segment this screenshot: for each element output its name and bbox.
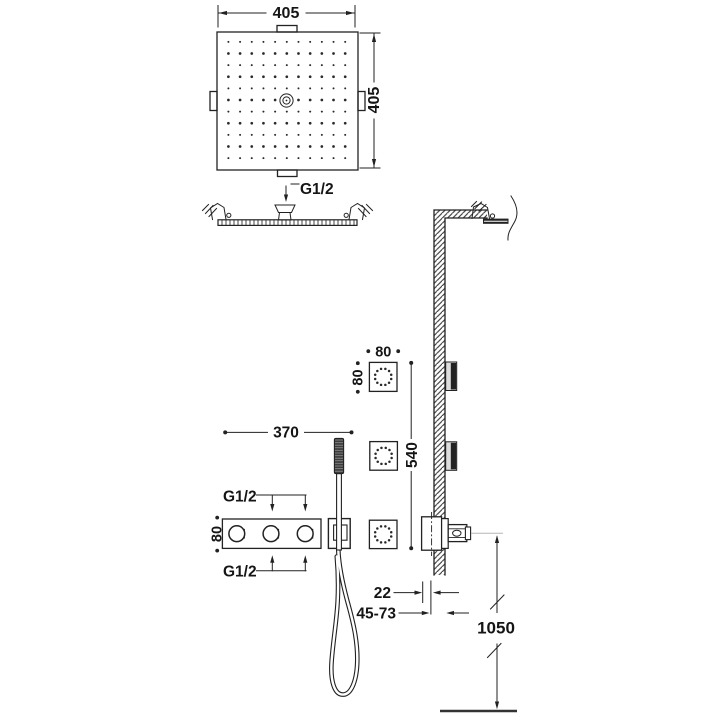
nozzle-dot	[388, 382, 391, 385]
section-break-curve	[508, 196, 517, 240]
nozzle-dot	[286, 157, 288, 159]
nozzle-dot	[309, 122, 312, 125]
nozzle-dot	[297, 134, 299, 136]
floor-height-label: 1050	[477, 619, 515, 638]
nozzle-dot	[285, 52, 288, 55]
nozzle-dot	[320, 52, 323, 55]
nozzle-dot	[374, 378, 377, 381]
nozzle-dot	[376, 382, 379, 385]
nozzle-dot	[344, 87, 346, 89]
nozzle-dot	[344, 41, 346, 43]
nozzle-dot	[321, 41, 323, 43]
nozzle-dot	[384, 384, 387, 387]
nozzle-dot	[274, 99, 277, 102]
jet-nozzle-dots	[374, 368, 393, 544]
nozzle-dot	[344, 99, 347, 102]
nozzle-dot	[262, 111, 264, 113]
nozzle-dot	[227, 64, 229, 66]
nozzle-dot	[320, 99, 323, 102]
nozzle-dot	[332, 99, 335, 102]
nozzle-dot	[297, 145, 300, 148]
jet-body-side-1	[446, 362, 457, 391]
nozzle-dot	[321, 111, 323, 113]
nozzle-dot	[227, 122, 230, 125]
nozzle-dot	[380, 463, 383, 466]
shower-head-tab-left	[210, 92, 217, 111]
nozzle-dot	[374, 535, 377, 538]
nozzle-dot	[239, 87, 241, 89]
mixer-knob-2	[263, 526, 279, 542]
nozzle-dot	[309, 111, 311, 113]
nozzle-dot	[227, 41, 229, 43]
nozzle-dot	[333, 87, 335, 89]
nozzle-dot	[297, 111, 299, 113]
head-width-label: 405	[273, 5, 300, 22]
nozzle-dot	[239, 99, 242, 102]
dimension-head-height: 405	[360, 33, 383, 168]
jet-body-side-2	[446, 442, 457, 471]
depth-range-label: 45-73	[356, 606, 396, 623]
nozzle-dot	[262, 41, 264, 43]
nozzle-dot	[239, 134, 241, 136]
nozzle-dot	[274, 64, 276, 66]
shower-head-tab-bottom	[278, 170, 298, 177]
jet-mechanism-side	[422, 512, 503, 556]
nozzle-dot	[274, 145, 277, 148]
nozzle-dot	[344, 75, 347, 78]
nozzle-dot	[384, 368, 387, 371]
nozzle-dot	[344, 145, 347, 148]
nozzle-dot	[285, 145, 288, 148]
nozzle-dot	[274, 52, 277, 55]
nozzle-dot	[390, 535, 393, 538]
nozzle-dot	[388, 449, 391, 452]
nozzle-dot	[376, 527, 379, 530]
shower-set-diagram: 405 405 G1/2	[0, 0, 720, 720]
nozzle-dot	[374, 374, 377, 377]
nozzle-dot	[227, 145, 230, 148]
nozzle-dot	[239, 75, 242, 78]
nozzle-dot	[250, 75, 253, 78]
nozzle-dot	[251, 111, 253, 113]
jet-width-label: 80	[375, 345, 391, 361]
nozzle-dot	[262, 145, 265, 148]
nozzle-dot	[376, 370, 379, 373]
nozzle-dot	[251, 157, 253, 159]
nozzle-dot	[262, 64, 264, 66]
body-jet-1	[369, 362, 397, 391]
dimension-jet-height: 80	[350, 361, 366, 393]
nozzle-dot	[380, 525, 383, 528]
nozzle-dot	[239, 64, 241, 66]
nozzle-dot	[274, 75, 277, 78]
nozzle-dot	[309, 157, 311, 159]
shower-head-tab-right	[358, 92, 365, 111]
nozzle-dot	[309, 75, 312, 78]
jet-span-label: 540	[404, 442, 421, 468]
nozzle-dot	[262, 134, 264, 136]
nozzle-dot	[333, 64, 335, 66]
nozzle-dot	[380, 541, 383, 544]
nozzle-dot	[333, 111, 335, 113]
nozzle-dot	[390, 378, 393, 381]
nozzle-dot	[374, 453, 377, 456]
nozzle-dot	[390, 453, 393, 456]
hand-shower-shaft	[337, 474, 342, 550]
mixer-top-connection-callout: G1/2	[223, 489, 307, 512]
hand-shower	[328, 438, 357, 694]
nozzle-dot	[239, 157, 241, 159]
nozzle-dot	[380, 368, 383, 371]
nozzle-dot	[239, 111, 241, 113]
nozzle-dot	[227, 134, 229, 136]
nozzle-dot	[320, 145, 323, 148]
central-nozzle-dot	[286, 100, 288, 102]
nozzle-dot	[250, 145, 253, 148]
nozzle-dot	[297, 99, 300, 102]
nozzle-dot	[384, 463, 387, 466]
mixer-width-label: 370	[273, 425, 299, 442]
nozzle-dot	[380, 447, 383, 450]
nozzle-dot	[297, 75, 300, 78]
nozzle-dot	[274, 111, 276, 113]
dimension-jet-width: 80	[366, 345, 400, 361]
body-jets-front	[369, 362, 397, 548]
wall-section	[422, 196, 517, 575]
nozzle-dot	[250, 99, 253, 102]
body-jet-2	[370, 442, 398, 471]
dimension-mixer-width: 370	[223, 425, 353, 442]
nozzle-dot	[376, 461, 379, 464]
ceiling-section-view	[203, 204, 373, 226]
nozzle-dot	[227, 111, 229, 113]
nozzle-dot	[332, 145, 335, 148]
nozzle-dot	[384, 525, 387, 528]
ceiling-hatch	[445, 210, 487, 218]
nozzle-dot	[332, 122, 335, 125]
nozzle-dot	[380, 384, 383, 387]
nozzle-dot	[274, 87, 276, 89]
nozzle-dot	[285, 75, 288, 78]
nozzle-dot	[390, 457, 393, 460]
nozzle-dot	[227, 157, 229, 159]
nozzle-dot	[321, 157, 323, 159]
nozzle-dot	[250, 52, 253, 55]
nozzle-dot	[344, 111, 346, 113]
nozzle-dot	[309, 99, 312, 102]
nozzle-dot	[344, 52, 347, 55]
nozzle-dot	[344, 122, 347, 125]
ceiling-anchor-right	[344, 204, 372, 220]
nozzle-dot	[374, 457, 377, 460]
nozzle-dot	[262, 87, 264, 89]
nozzle-dot	[297, 87, 299, 89]
nozzle-dot	[262, 52, 265, 55]
nozzle-dot	[376, 539, 379, 542]
shower-head-section-bar	[218, 220, 357, 226]
water-inlet-connector	[275, 205, 295, 220]
nozzle-dot	[251, 87, 253, 89]
nozzle-dot	[274, 157, 276, 159]
nozzle-dot	[274, 134, 276, 136]
nozzle-dot	[286, 87, 288, 89]
nozzle-dot	[274, 122, 277, 125]
nozzle-dot	[388, 461, 391, 464]
nozzle-dot	[344, 157, 346, 159]
dimension-depth-range: 45-73	[356, 606, 468, 623]
nozzle-dot	[333, 134, 335, 136]
head-height-label: 405	[366, 87, 383, 114]
nozzle-dot	[344, 64, 346, 66]
nozzle-dot	[384, 447, 387, 450]
nozzle-dot	[309, 52, 312, 55]
nozzle-dot	[227, 52, 230, 55]
technical-drawing-canvas: 405 405 G1/2	[0, 0, 720, 720]
nozzle-dot	[262, 75, 265, 78]
nozzle-dot	[262, 99, 265, 102]
mixer-knob-3	[297, 526, 313, 542]
mixer-bottom-connection-label: G1/2	[223, 564, 257, 581]
nozzle-dot	[262, 157, 264, 159]
nozzle-dot	[250, 122, 253, 125]
jet-height-label: 80	[350, 369, 366, 385]
nozzle-dot	[321, 134, 323, 136]
nozzle-dot	[320, 122, 323, 125]
mixer-height-label: 80	[209, 526, 225, 542]
nozzle-dot	[297, 41, 299, 43]
body-jet-3	[369, 520, 397, 548]
nozzle-dot	[297, 122, 300, 125]
nozzle-dot	[239, 145, 242, 148]
nozzle-dot	[262, 122, 265, 125]
nozzle-dot	[285, 122, 288, 125]
dimension-floor-height: 1050	[440, 535, 517, 711]
nozzle-dot	[274, 41, 276, 43]
nozzle-dot	[286, 134, 288, 136]
nozzle-dot	[388, 527, 391, 530]
shower-hose-core	[331, 551, 357, 695]
dimension-jet-span: 540	[404, 361, 421, 550]
mixer-top-connection-label: G1/2	[223, 489, 257, 506]
nozzle-dot	[251, 134, 253, 136]
nozzle-dot	[227, 87, 229, 89]
nozzle-dot	[286, 111, 288, 113]
dimension-head-width: 405	[218, 5, 355, 27]
nozzle-dot	[388, 539, 391, 542]
hand-shower-grip	[334, 438, 343, 473]
nozzle-dot	[239, 122, 242, 125]
nozzle-dot	[344, 134, 346, 136]
nozzle-dot	[309, 64, 311, 66]
nozzle-dot	[320, 75, 323, 78]
nozzle-dot	[227, 99, 230, 102]
nozzle-dot	[333, 157, 335, 159]
nozzle-dot	[321, 87, 323, 89]
head-connection-callout: G1/2	[284, 181, 334, 202]
nozzle-dot	[388, 370, 391, 373]
nozzle-dot	[297, 52, 300, 55]
nozzle-dot	[251, 64, 253, 66]
nozzle-dot	[309, 134, 311, 136]
ceiling-anchor-left	[203, 204, 231, 220]
nozzle-dot	[286, 41, 288, 43]
nozzle-dot	[309, 145, 312, 148]
nozzle-dot	[239, 41, 241, 43]
mixer-front	[222, 519, 321, 548]
nozzle-dot	[374, 531, 377, 534]
nozzle-dot	[239, 52, 242, 55]
shower-head-tab-top	[277, 26, 297, 33]
nozzle-dot	[332, 52, 335, 55]
nozzle-dot	[297, 157, 299, 159]
nozzle-dot	[390, 374, 393, 377]
nozzle-dot	[309, 41, 311, 43]
nozzle-dot	[333, 41, 335, 43]
nozzle-dot	[390, 531, 393, 534]
wall-offset-label: 22	[374, 585, 391, 602]
nozzle-dot	[227, 75, 230, 78]
nozzle-dot	[251, 41, 253, 43]
overhead-shower-plan	[210, 26, 365, 177]
nozzle-dot	[384, 541, 387, 544]
nozzle-dot	[286, 64, 288, 66]
nozzle-dot	[332, 75, 335, 78]
nozzle-dot	[309, 87, 311, 89]
nozzle-dot	[376, 449, 379, 452]
mixer-knob-1	[229, 526, 245, 542]
head-connection-label: G1/2	[300, 181, 334, 198]
nozzle-dot	[321, 64, 323, 66]
nozzle-dot	[297, 64, 299, 66]
mixer-bottom-connection-callout: G1/2	[223, 555, 307, 580]
